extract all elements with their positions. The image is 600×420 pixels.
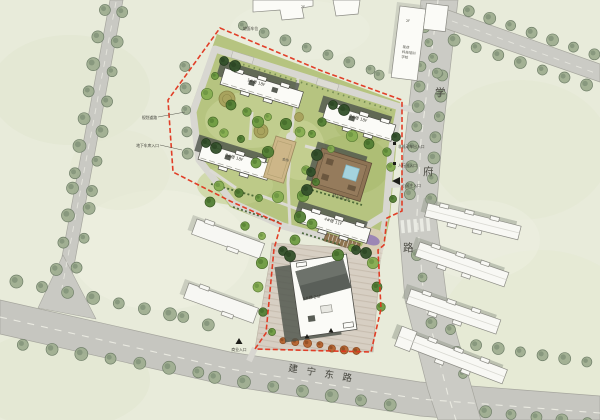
- non-motor-entrance-label: 非机动车出入口: [398, 144, 425, 149]
- planned-road-note: 规划道路: [142, 115, 157, 120]
- road-label-xuefu-3: 路: [403, 241, 414, 254]
- surface-parking-note: 地面车位: [243, 26, 258, 31]
- road-label-jianning-2: 宁: [306, 365, 317, 378]
- ne-building-floors: 2F: [406, 19, 410, 23]
- main-entrance-label: 小区主入口: [402, 183, 421, 188]
- road-label-jianning-3: 东: [324, 368, 335, 381]
- garage-entrance-label: 地下车库入口: [136, 143, 159, 148]
- ne-building-line3: 学校: [401, 54, 409, 60]
- site-plan-map: 学 府 路 建 宁 东 路 小区主入口 非机动车出入口 人行出入口 商业入口 规…: [0, 0, 600, 420]
- road-label-xuefu-2: 府: [423, 165, 434, 178]
- commercial-entrance-label: 商业入口: [231, 347, 246, 352]
- ne-building-line1: 现状: [402, 44, 410, 50]
- top-building-floors: 2F: [301, 5, 305, 9]
- site-plan-stage: 学 府 路 建 宁 东 路 小区主入口 非机动车出入口 人行出入口 商业入口 规…: [0, 0, 600, 420]
- pedestrian-entrance-label: 人行出入口: [398, 163, 417, 168]
- road-label-xuefu-1: 学: [435, 86, 446, 99]
